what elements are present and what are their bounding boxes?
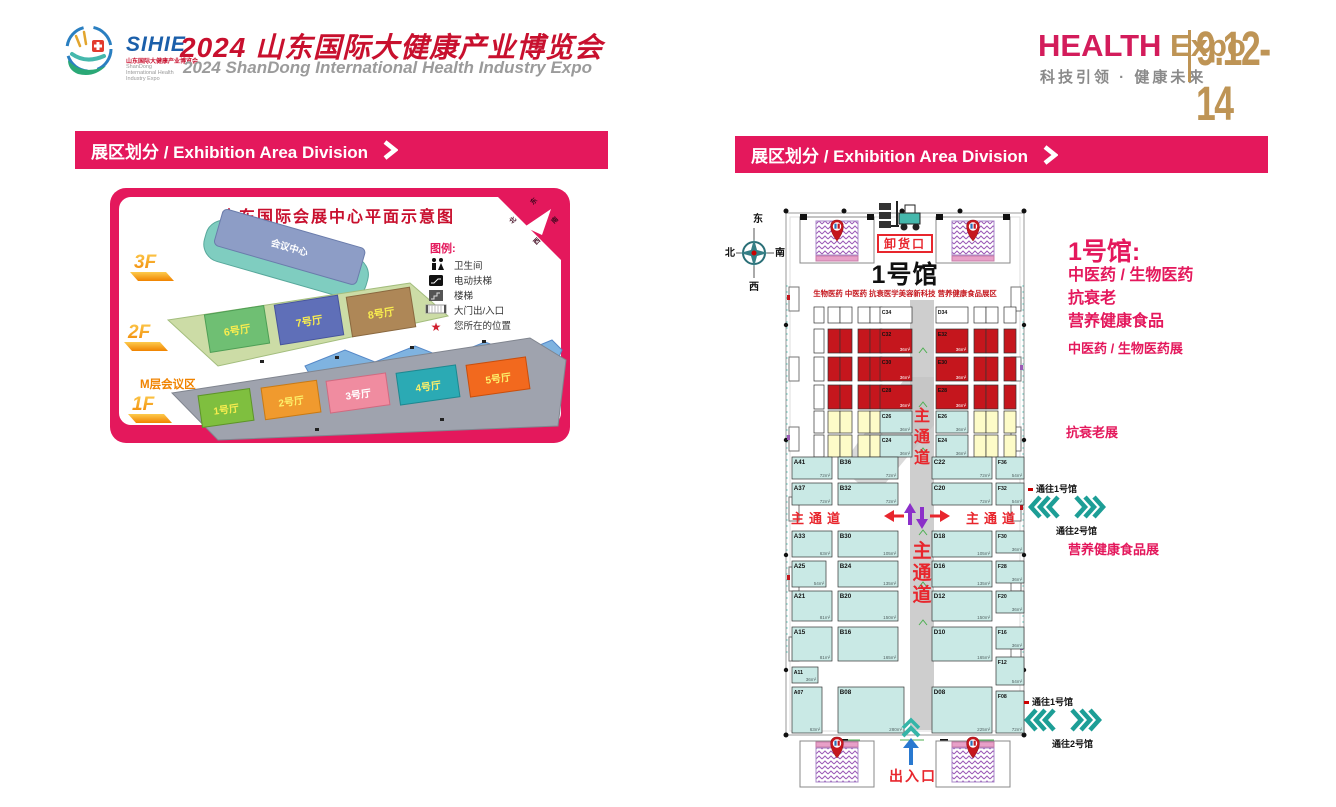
svg-text:C20: C20 bbox=[934, 485, 946, 492]
svg-text:A25: A25 bbox=[794, 563, 806, 570]
booth-A25: A2554m² bbox=[792, 561, 826, 587]
booth bbox=[1004, 357, 1016, 381]
svg-text:72m²: 72m² bbox=[820, 473, 831, 478]
location-star-icon: ★ bbox=[431, 320, 442, 334]
svg-text:E28: E28 bbox=[938, 388, 947, 394]
booth bbox=[828, 307, 852, 323]
svg-text:F36: F36 bbox=[998, 460, 1007, 466]
booth bbox=[828, 385, 852, 409]
svg-text:东: 东 bbox=[753, 212, 763, 225]
booth bbox=[858, 385, 882, 409]
svg-text:E26: E26 bbox=[938, 414, 947, 420]
booth bbox=[814, 329, 824, 353]
hall-subtitle: 生物医药 中医药 抗衰医学美容新科技 营养健康食品展区 bbox=[813, 289, 997, 298]
passage-to-hall2: 通往2号馆 bbox=[1056, 524, 1112, 537]
svg-text:E24: E24 bbox=[938, 438, 947, 444]
svg-text:36m²: 36m² bbox=[900, 403, 911, 408]
sidebar-category: 营养健康食品 bbox=[1068, 310, 1193, 333]
booth bbox=[974, 307, 998, 323]
stairs-icon bbox=[429, 290, 443, 301]
compass: 东 北 南 西 bbox=[722, 208, 786, 296]
booth-F16: F1636m² bbox=[996, 627, 1024, 649]
main-aisle-label-vertical-upper: 主通道 bbox=[914, 406, 930, 467]
booth-F30: F3036m² bbox=[996, 531, 1024, 553]
booth bbox=[814, 357, 824, 381]
legend-item: 您所在的位置 bbox=[454, 320, 511, 332]
booth bbox=[828, 435, 852, 457]
svg-text:A21: A21 bbox=[794, 593, 806, 600]
svg-text:150m²: 150m² bbox=[883, 615, 896, 620]
svg-text:54m²: 54m² bbox=[1012, 473, 1023, 478]
booth-B24: B24135m² bbox=[838, 561, 898, 587]
booth-A07: A0763m² bbox=[792, 687, 822, 733]
svg-text:E32: E32 bbox=[938, 332, 947, 338]
booth bbox=[858, 435, 882, 457]
svg-text:36m²: 36m² bbox=[956, 375, 967, 380]
booth bbox=[1004, 307, 1016, 323]
booth-B30: B30105m² bbox=[838, 531, 898, 557]
svg-text:A07: A07 bbox=[794, 690, 804, 696]
svg-text:A11: A11 bbox=[794, 670, 803, 676]
svg-text:54m²: 54m² bbox=[814, 581, 825, 586]
main-aisle-label-vertical-lower: 主通道 bbox=[912, 540, 932, 606]
booth-C34: C34 bbox=[880, 307, 912, 323]
booth-B16: B16165m² bbox=[838, 627, 898, 661]
svg-text:C24: C24 bbox=[882, 438, 892, 444]
svg-text:36m²: 36m² bbox=[900, 451, 911, 456]
booth-A15: A1581m² bbox=[792, 627, 832, 661]
booth-F36: F3654m² bbox=[996, 457, 1024, 479]
svg-text:主: 主 bbox=[914, 406, 930, 425]
svg-text:B08: B08 bbox=[840, 689, 852, 696]
main-aisle-label-left: 主通道 bbox=[791, 511, 845, 526]
svg-text:C34: C34 bbox=[882, 310, 892, 316]
booth-A11: A1136m² bbox=[792, 667, 818, 683]
booth bbox=[858, 411, 882, 433]
svg-text:36m²: 36m² bbox=[900, 427, 911, 432]
svg-text:105m²: 105m² bbox=[883, 551, 896, 556]
booth-F12: F1254m² bbox=[996, 657, 1024, 685]
expo-dates: 9.12-14 bbox=[1196, 22, 1300, 132]
mezzanine-label: M层会议区 bbox=[140, 377, 196, 391]
svg-text:36m²: 36m² bbox=[900, 347, 911, 352]
booth bbox=[974, 385, 998, 409]
svg-text:72m²: 72m² bbox=[1012, 727, 1023, 732]
divider bbox=[1188, 30, 1191, 82]
zone-label-antiaging: 抗衰老展 bbox=[1066, 422, 1118, 441]
svg-text:B30: B30 bbox=[840, 533, 852, 540]
svg-text:北: 北 bbox=[725, 246, 735, 259]
svg-text:165m²: 165m² bbox=[883, 655, 896, 660]
svg-text:道: 道 bbox=[914, 448, 930, 467]
svg-text:36m²: 36m² bbox=[1012, 607, 1023, 612]
venue-map: 北 东 南 西 山东国际会展中心平面示意图 3F 2F 1F 会议中心 6号厅 … bbox=[110, 188, 570, 443]
booth-D34: D34 bbox=[936, 307, 968, 323]
booth bbox=[814, 385, 824, 409]
svg-text:F12: F12 bbox=[998, 660, 1007, 666]
hall1-floorplan: C34D34C3236m²E3236m²C3036m²E3036m²C2836m… bbox=[780, 195, 1030, 805]
svg-text:72m²: 72m² bbox=[980, 499, 991, 504]
unloading-label: 卸货口 bbox=[884, 236, 926, 251]
svg-text:54m²: 54m² bbox=[1012, 679, 1023, 684]
passage-chevrons-icon bbox=[1024, 708, 1102, 732]
booth-C28: C2836m² bbox=[880, 385, 912, 409]
booth bbox=[1004, 385, 1016, 409]
zone-label-nutrition: 营养健康食品展 bbox=[1068, 539, 1159, 558]
entrance-arrow-icon bbox=[903, 720, 919, 765]
svg-text:道: 道 bbox=[912, 583, 931, 606]
booth bbox=[814, 435, 824, 457]
booth-B32: B3272m² bbox=[838, 483, 898, 505]
svg-text:主: 主 bbox=[912, 540, 931, 562]
svg-text:36m²: 36m² bbox=[956, 427, 967, 432]
booth-D12: D12150m² bbox=[932, 591, 992, 621]
logo-en-text: ShanDong International Health Industry E… bbox=[126, 64, 178, 82]
booth-B08: B08280m² bbox=[838, 687, 904, 733]
svg-text:72m²: 72m² bbox=[980, 473, 991, 478]
svg-text:通: 通 bbox=[912, 562, 932, 584]
bottom-entrance-left bbox=[800, 737, 874, 787]
left-section-banner: 展区划分 / Exhibition Area Division bbox=[75, 131, 608, 169]
svg-text:B32: B32 bbox=[840, 485, 852, 492]
svg-text:36m²: 36m² bbox=[1012, 643, 1023, 648]
expo-logo-globe-icon bbox=[58, 20, 120, 82]
svg-text:F20: F20 bbox=[998, 594, 1007, 600]
booth-A21: A2181m² bbox=[792, 591, 832, 621]
svg-text:C32: C32 bbox=[882, 332, 892, 338]
right-banner-label: 展区划分 / Exhibition Area Division bbox=[751, 142, 1028, 167]
svg-text:36m²: 36m² bbox=[956, 403, 967, 408]
booth-E30: E3036m² bbox=[936, 357, 968, 381]
passage-to-hall1: 通往1号馆 bbox=[1028, 482, 1112, 495]
booth bbox=[974, 435, 998, 457]
svg-text:36m²: 36m² bbox=[806, 677, 817, 682]
booth bbox=[814, 307, 824, 323]
svg-text:81m²: 81m² bbox=[820, 615, 831, 620]
booth-C24: C2436m² bbox=[880, 435, 912, 457]
svg-text:36m²: 36m² bbox=[956, 451, 967, 456]
sidebar-category: 抗衰老 bbox=[1068, 287, 1193, 310]
svg-text:A41: A41 bbox=[794, 459, 806, 466]
svg-text:C26: C26 bbox=[882, 414, 892, 420]
booth-F08: F0872m² bbox=[996, 691, 1024, 733]
svg-text:D12: D12 bbox=[934, 593, 946, 600]
booth bbox=[1004, 435, 1016, 457]
svg-text:D10: D10 bbox=[934, 629, 946, 636]
left-banner-label: 展区划分 / Exhibition Area Division bbox=[91, 138, 368, 163]
booth bbox=[974, 357, 998, 381]
svg-text:72m²: 72m² bbox=[886, 499, 897, 504]
svg-text:F28: F28 bbox=[998, 564, 1007, 570]
legend-title: 图例: bbox=[430, 241, 456, 255]
svg-text:63m²: 63m² bbox=[820, 551, 831, 556]
booth-C22: C2272m² bbox=[932, 457, 992, 479]
svg-text:B36: B36 bbox=[840, 459, 852, 466]
booth-C32: C3236m² bbox=[880, 329, 912, 353]
booth-A33: A3363m² bbox=[792, 531, 832, 557]
svg-text:D34: D34 bbox=[938, 310, 948, 316]
right-section-banner: 展区划分 / Exhibition Area Division bbox=[735, 136, 1268, 173]
svg-text:F30: F30 bbox=[998, 534, 1007, 540]
forklift-icon bbox=[879, 201, 920, 231]
svg-text:135m²: 135m² bbox=[977, 581, 990, 586]
svg-text:81m²: 81m² bbox=[820, 655, 831, 660]
svg-text:72m²: 72m² bbox=[820, 499, 831, 504]
booth-E28: E2836m² bbox=[936, 385, 968, 409]
booth-F32: F3254m² bbox=[996, 483, 1024, 505]
svg-text:B20: B20 bbox=[840, 593, 852, 600]
passage-to-hall1: 通往1号馆 bbox=[1024, 695, 1108, 708]
svg-text:105m²: 105m² bbox=[977, 551, 990, 556]
svg-text:D08: D08 bbox=[934, 689, 946, 696]
passage-cluster-lower: 通往1号馆 通往2号馆 bbox=[1024, 695, 1108, 750]
booth bbox=[828, 329, 852, 353]
gate-icon bbox=[426, 305, 446, 313]
svg-text:54m²: 54m² bbox=[1012, 499, 1023, 504]
svg-text:D16: D16 bbox=[934, 563, 946, 570]
legend-item: 楼梯 bbox=[454, 290, 474, 302]
svg-text:通: 通 bbox=[914, 428, 930, 446]
booth bbox=[814, 411, 824, 433]
banner-chevron-icon bbox=[382, 140, 398, 160]
svg-text:3F: 3F bbox=[134, 252, 158, 273]
svg-text:36m²: 36m² bbox=[1012, 577, 1023, 582]
booth-B36: B3672m² bbox=[838, 457, 898, 479]
booth-F28: F2836m² bbox=[996, 561, 1024, 583]
svg-text:2F: 2F bbox=[127, 322, 152, 343]
hall-title: 1号馆 bbox=[872, 260, 939, 289]
banner-chevron-icon bbox=[1042, 145, 1058, 165]
red-tick bbox=[1028, 488, 1033, 491]
svg-text:C30: C30 bbox=[882, 360, 892, 366]
svg-text:150m²: 150m² bbox=[977, 615, 990, 620]
booth-D08: D08225m² bbox=[932, 687, 992, 733]
svg-text:165m²: 165m² bbox=[977, 655, 990, 660]
legend-item: 电动扶梯 bbox=[454, 275, 493, 287]
booth-C30: C3036m² bbox=[880, 357, 912, 381]
entrance-label: 出入口 bbox=[889, 768, 937, 784]
page: { "header": { "logo": {"acronym": "SIHIE… bbox=[0, 0, 1336, 807]
svg-text:B16: B16 bbox=[840, 629, 852, 636]
svg-text:B24: B24 bbox=[840, 563, 852, 570]
svg-text:36m²: 36m² bbox=[900, 375, 911, 380]
svg-text:36m²: 36m² bbox=[956, 347, 967, 352]
top-entrance-right bbox=[936, 217, 1010, 263]
svg-text:225m²: 225m² bbox=[977, 727, 990, 732]
logo-acronym: SIHIE bbox=[126, 33, 186, 57]
svg-text:72m²: 72m² bbox=[886, 473, 897, 478]
unloading-gate: 卸货口 bbox=[878, 235, 932, 252]
svg-text:1F: 1F bbox=[132, 394, 156, 415]
booth bbox=[1004, 329, 1016, 353]
svg-text:280m²: 280m² bbox=[889, 727, 902, 732]
booth bbox=[1004, 411, 1016, 433]
brand-health: HEALTH bbox=[1038, 28, 1161, 63]
svg-text:A37: A37 bbox=[794, 485, 806, 492]
passage-cluster-upper: 通往1号馆 通往2号馆 bbox=[1028, 482, 1112, 537]
booth-C26: C2636m² bbox=[880, 411, 912, 433]
booth-A41: A4172m² bbox=[792, 457, 832, 479]
svg-text:A33: A33 bbox=[794, 533, 806, 540]
svg-text:63m²: 63m² bbox=[810, 727, 821, 732]
svg-text:A15: A15 bbox=[794, 629, 806, 636]
main-aisle-label-right: 主通道 bbox=[966, 511, 1020, 526]
passage-chevrons-icon bbox=[1028, 495, 1106, 519]
booth-F20: F2036m² bbox=[996, 591, 1024, 613]
booth-E32: E3236m² bbox=[936, 329, 968, 353]
svg-text:135m²: 135m² bbox=[883, 581, 896, 586]
booth-B20: B20150m² bbox=[838, 591, 898, 621]
booth bbox=[974, 411, 998, 433]
brand-slogan: 科技引领 · 健康未来 bbox=[1040, 66, 1206, 87]
sidebar-categories: 中医药 / 生物医药 抗衰老 营养健康食品 bbox=[1068, 264, 1193, 333]
booth bbox=[828, 357, 852, 381]
booth bbox=[858, 357, 882, 381]
svg-text:D18: D18 bbox=[934, 533, 946, 540]
svg-text:西: 西 bbox=[749, 281, 759, 293]
bottom-entrance-right bbox=[936, 737, 1010, 787]
page-subtitle: 2024 ShanDong International Health Indus… bbox=[183, 58, 592, 78]
svg-text:C22: C22 bbox=[934, 459, 946, 466]
booth-A37: A3772m² bbox=[792, 483, 832, 505]
passage-to-hall2: 通往2号馆 bbox=[1052, 737, 1108, 750]
legend-item: 卫生间 bbox=[454, 260, 483, 272]
zone-label-tcm: 中医药 / 生物医药展 bbox=[1068, 338, 1183, 357]
svg-text:F16: F16 bbox=[998, 630, 1007, 636]
svg-text:36m²: 36m² bbox=[1012, 547, 1023, 552]
booth-E24: E2436m² bbox=[936, 435, 968, 457]
sidebar-hall-title: 1号馆: bbox=[1068, 232, 1140, 268]
booth-D16: D16135m² bbox=[932, 561, 992, 587]
booth bbox=[858, 329, 882, 353]
top-entrance-left bbox=[800, 217, 874, 263]
svg-text:E30: E30 bbox=[938, 360, 947, 366]
booth-E26: E2636m² bbox=[936, 411, 968, 433]
booth bbox=[974, 329, 998, 353]
svg-text:F32: F32 bbox=[998, 486, 1007, 492]
booth bbox=[828, 411, 852, 433]
legend-item: 大门出/入口 bbox=[454, 305, 504, 317]
escalator-icon bbox=[429, 275, 443, 286]
booth-D10: D10165m² bbox=[932, 627, 992, 661]
svg-text:F08: F08 bbox=[998, 694, 1007, 700]
svg-text:C28: C28 bbox=[882, 388, 892, 394]
sidebar-category: 中医药 / 生物医药 bbox=[1068, 264, 1193, 287]
booth-D18: D18105m² bbox=[932, 531, 992, 557]
red-tick bbox=[1024, 701, 1029, 704]
booth bbox=[858, 307, 882, 323]
booth-C20: C2072m² bbox=[932, 483, 992, 505]
